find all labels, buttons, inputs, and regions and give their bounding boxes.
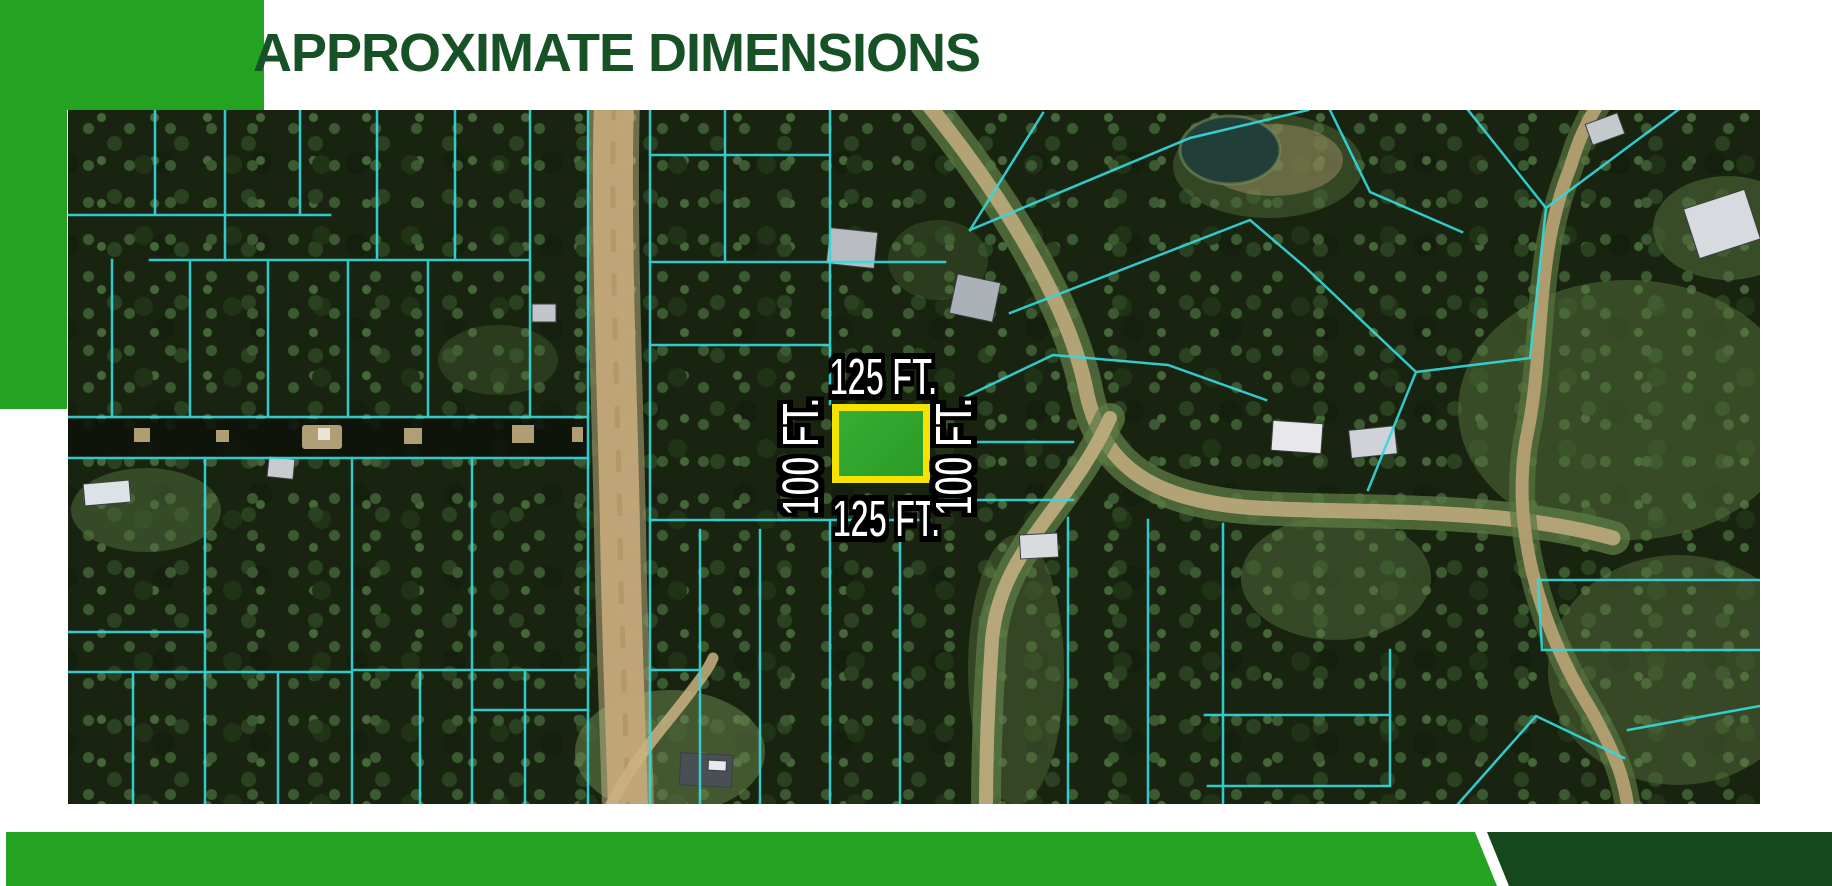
dimension-label-left: 100 FT. <box>774 398 828 516</box>
pond <box>1180 116 1280 184</box>
shaded-street <box>68 419 588 459</box>
aerial-parcel-map: 125 FT. 125 FT. 100 FT. 100 FT. <box>68 110 1760 804</box>
dimension-label-right: 100 FT. <box>927 398 981 516</box>
dimension-label-top: 125 FT. <box>829 350 936 404</box>
page-title: APPROXIMATE DIMENSIONS <box>253 24 980 83</box>
left-accent-bar <box>0 0 67 409</box>
footer <box>0 832 1832 886</box>
highlighted-parcel <box>832 404 930 483</box>
slide: APPROXIMATE DIMENSIONS <box>0 0 1832 886</box>
